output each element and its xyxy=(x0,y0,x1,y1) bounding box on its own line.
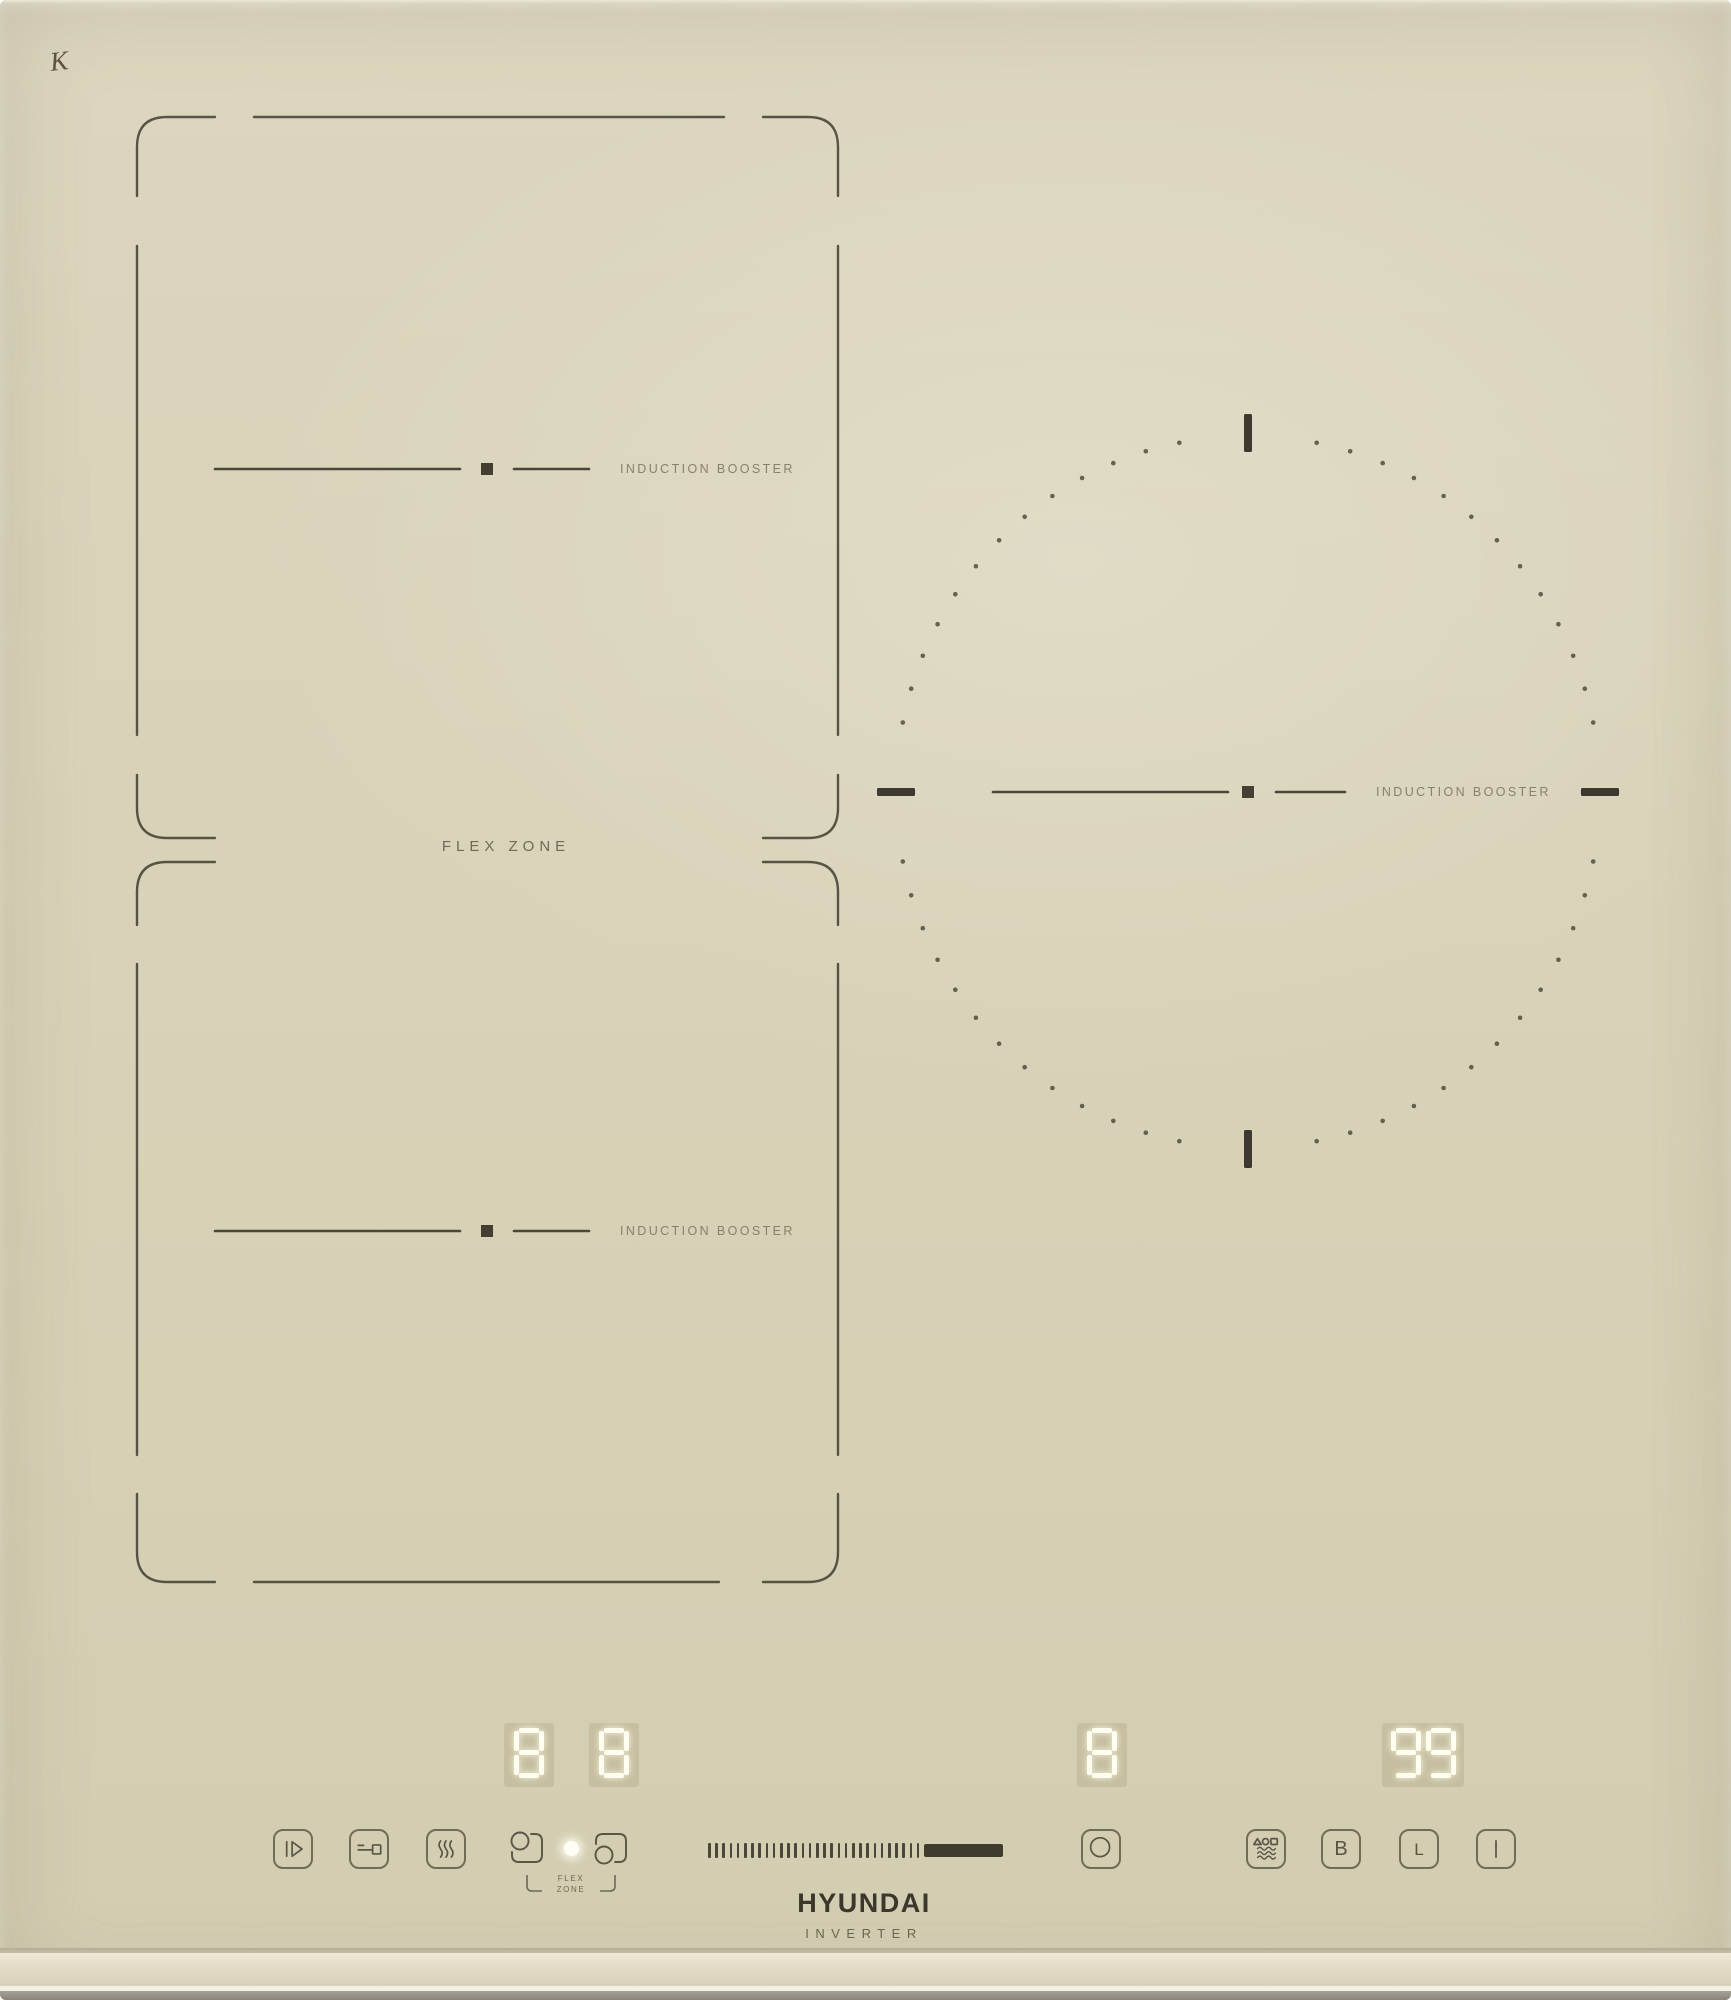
stop-go-bar-icon xyxy=(1478,1829,1514,1869)
display-left-top-zone xyxy=(504,1723,554,1787)
heat-waves-icon xyxy=(428,1829,464,1869)
key-lock-button[interactable] xyxy=(349,1829,389,1869)
flex-bridge-label: FLEX ZONE xyxy=(545,1873,597,1895)
seven-segment-digit xyxy=(512,1728,547,1783)
flex-link-indicator-light xyxy=(564,1841,579,1856)
booster-label: B xyxy=(1334,1839,1347,1859)
seven-segment-digit xyxy=(1085,1728,1120,1783)
booster-button[interactable]: B xyxy=(1321,1829,1361,1869)
flex-bridge-left-bracket-icon xyxy=(525,1875,543,1893)
brand-tagline: INVERTER xyxy=(766,1926,962,1941)
glass-top-edge-highlight xyxy=(0,0,1731,4)
cooking-presets-button[interactable] xyxy=(1246,1829,1286,1869)
slider-level-bar xyxy=(924,1844,1003,1857)
zone-centre-squares xyxy=(481,463,1254,1237)
right-zone-select-button[interactable] xyxy=(1081,1829,1121,1869)
flex-zone-label: FLEX ZONE xyxy=(418,838,594,855)
zone-centre-markers xyxy=(215,469,1345,1231)
glass-front-bevel xyxy=(0,1953,1731,1986)
right-zone-label: INDUCTION BOOSTER xyxy=(1376,785,1526,799)
left-top-zone-label: INDUCTION BOOSTER xyxy=(620,462,770,476)
flex-bottom-zone-select-button[interactable] xyxy=(591,1829,631,1869)
flex-bridge-right-bracket-icon xyxy=(599,1875,617,1893)
display-timer xyxy=(1382,1723,1464,1787)
etched-graphics xyxy=(0,0,1731,2000)
child-lock-button[interactable]: L xyxy=(1399,1829,1439,1869)
display-right-zone xyxy=(1077,1723,1127,1787)
pan-centered-icon xyxy=(1083,1829,1119,1869)
pan-bottom-left-icon xyxy=(591,1829,631,1869)
stop-and-go-button[interactable] xyxy=(1476,1829,1516,1869)
corner-mark: K xyxy=(48,45,69,78)
seven-segment-digits xyxy=(1388,1728,1458,1783)
power-level-slider[interactable] xyxy=(704,1838,1012,1862)
brand-logo: HYUNDAI xyxy=(766,1888,962,1919)
flex-top-zone-select-button[interactable] xyxy=(507,1829,547,1869)
power-play-icon xyxy=(275,1829,311,1869)
display-left-bottom-zone xyxy=(589,1723,639,1787)
child-lock-label: L xyxy=(1414,1841,1423,1858)
seven-segment-digit xyxy=(597,1728,632,1783)
key-lock-icon xyxy=(351,1829,387,1869)
left-bottom-zone-label: INDUCTION BOOSTER xyxy=(620,1224,770,1238)
flex-bridge-label-group: FLEX ZONE xyxy=(525,1871,617,1899)
keep-warm-button[interactable] xyxy=(426,1829,466,1869)
pan-top-left-icon xyxy=(507,1829,547,1869)
melt-simmer-boil-icon xyxy=(1248,1829,1284,1869)
metal-base-strip xyxy=(0,1991,1731,2000)
power-button[interactable] xyxy=(273,1829,313,1869)
cooktop-surface: K INDUCTION BOOSTER INDUCTION BOOSTER IN… xyxy=(0,0,1731,2000)
